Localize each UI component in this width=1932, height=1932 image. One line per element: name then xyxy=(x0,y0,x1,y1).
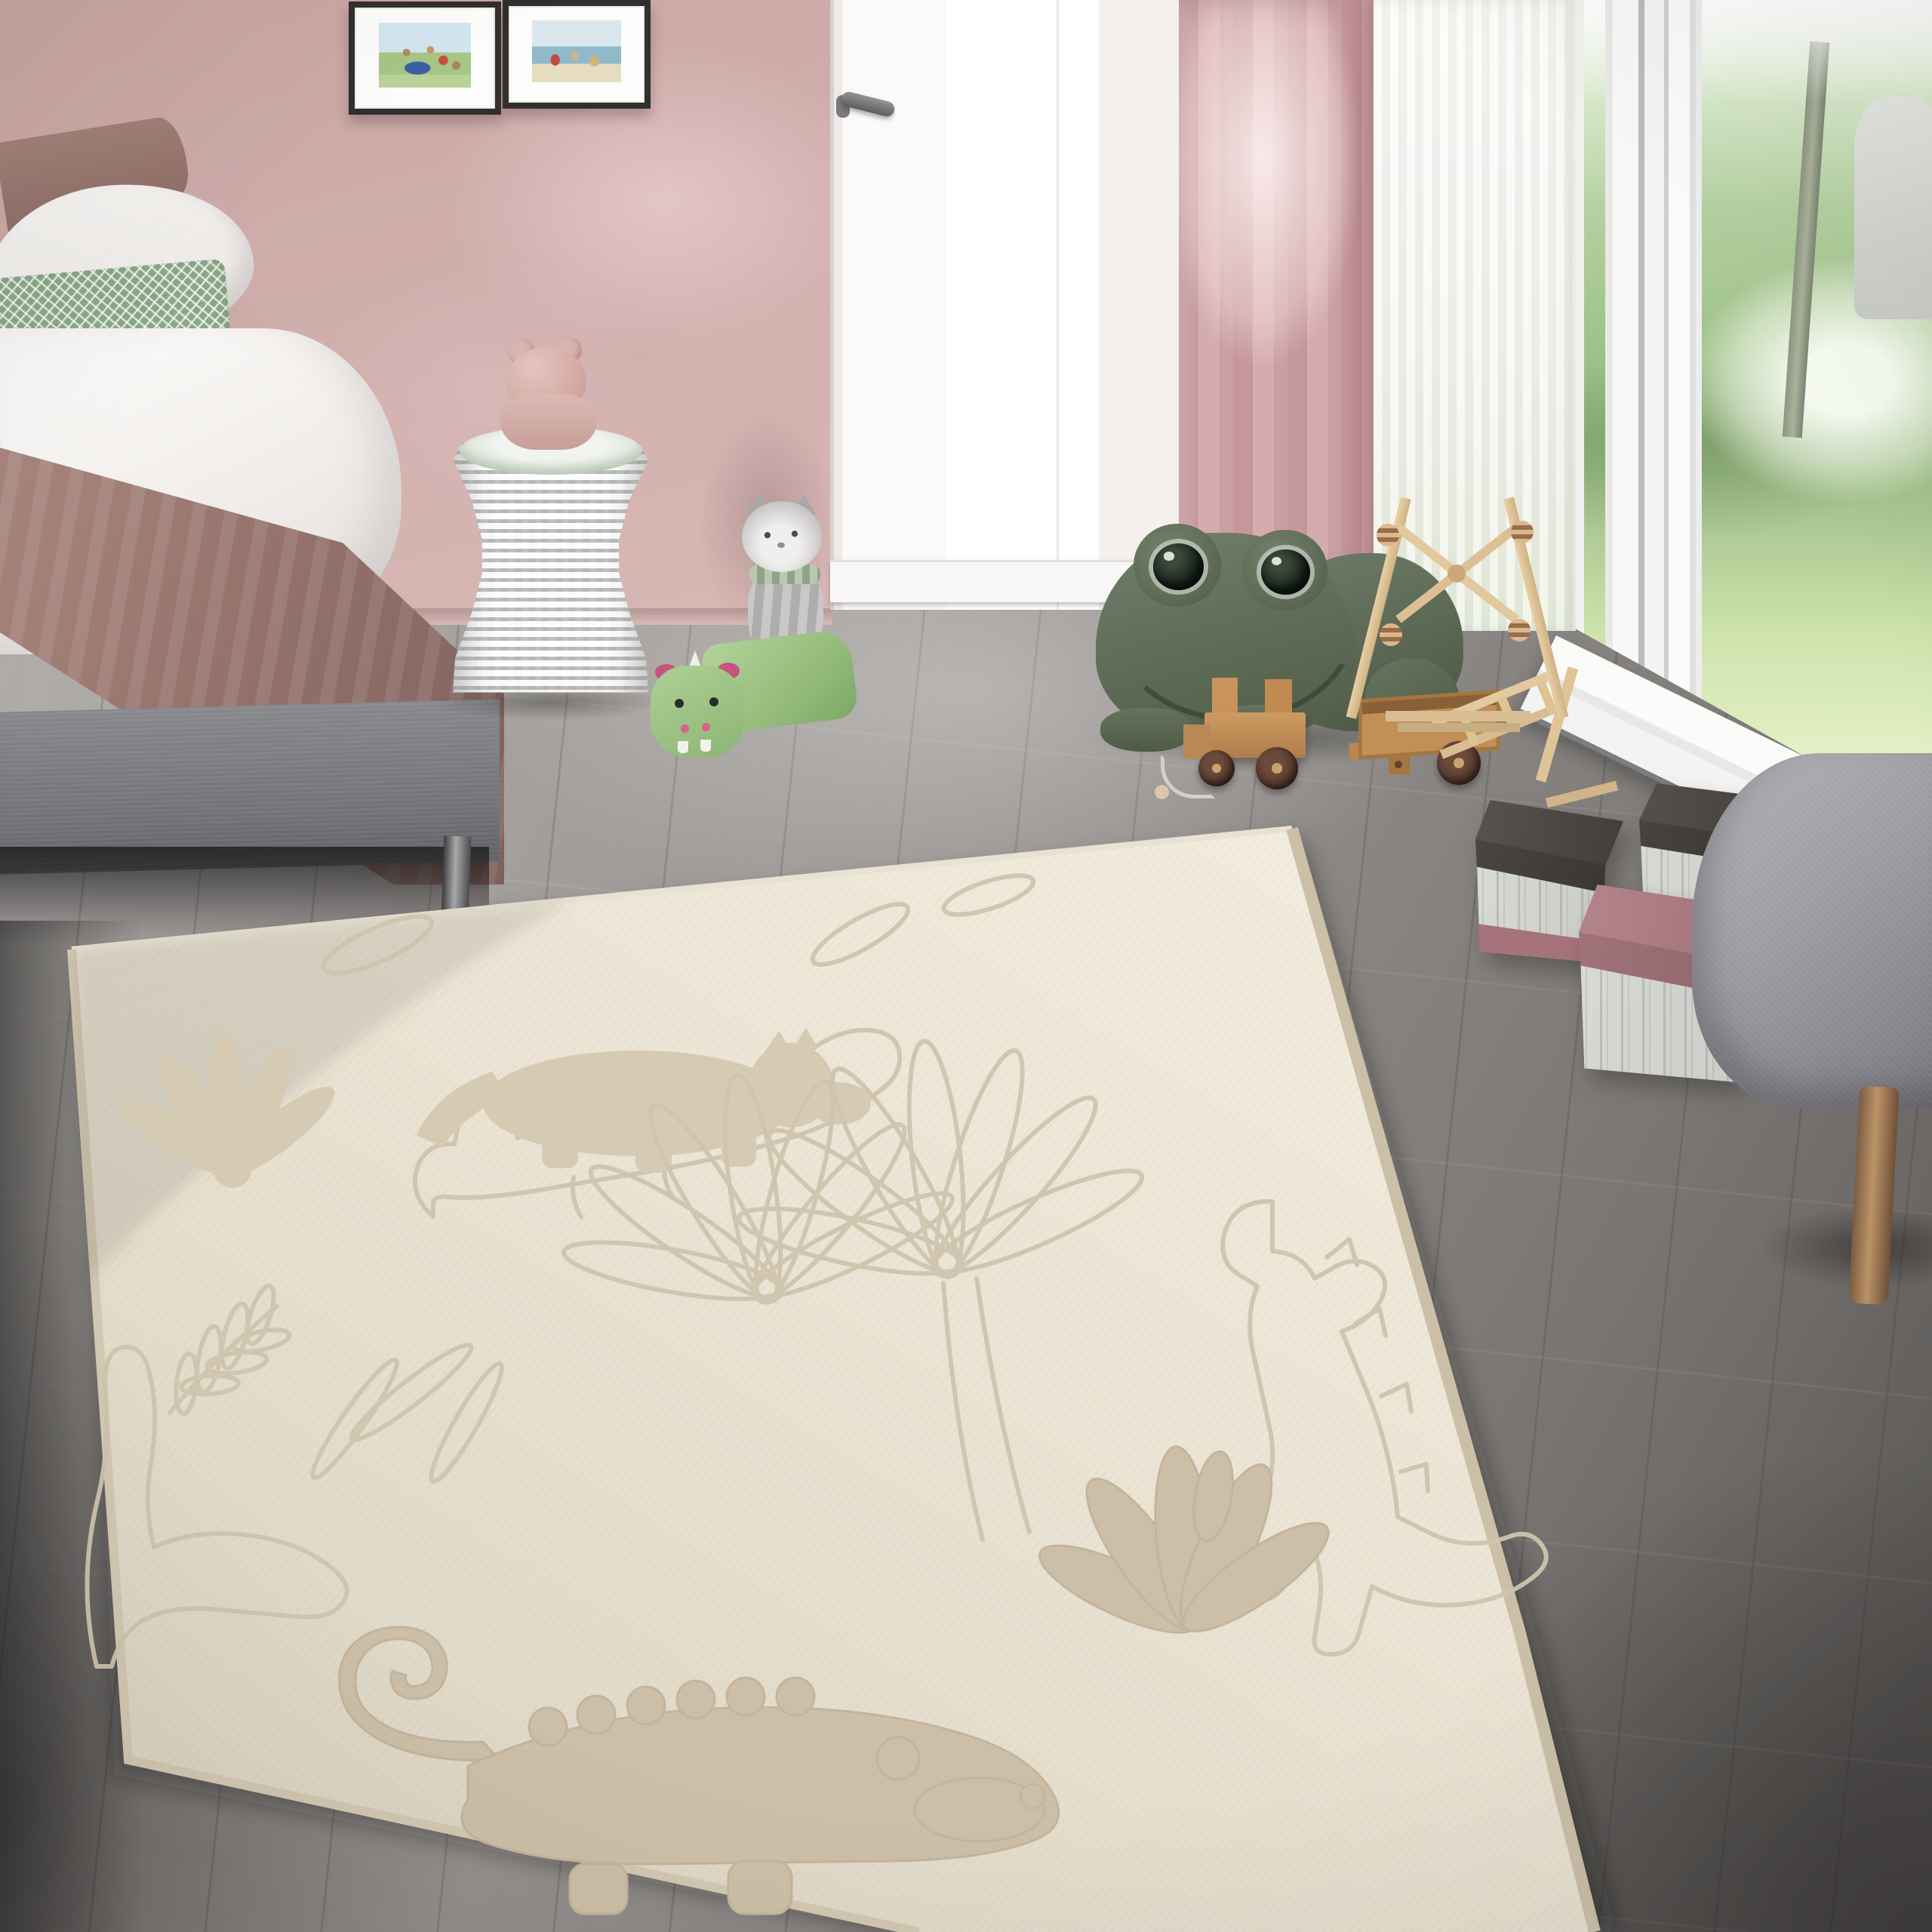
bed-leg xyxy=(441,835,472,943)
picture-art-car-picnic xyxy=(379,23,472,88)
cat-head xyxy=(742,501,822,572)
train-wheel xyxy=(1198,750,1235,786)
ferris-rattle xyxy=(1511,521,1534,543)
chair-shadow xyxy=(1760,1206,1932,1289)
bed xyxy=(0,121,521,974)
frog-eye-glint xyxy=(1272,557,1281,565)
frog-eye-glint xyxy=(1164,552,1174,560)
dragon-pillow xyxy=(651,632,856,761)
frog-foot-left xyxy=(1100,708,1192,752)
ferris-axle xyxy=(1447,565,1466,583)
wagon-hitch xyxy=(1389,755,1410,774)
picture-art-beach xyxy=(532,20,622,82)
frog-eye-right xyxy=(1242,530,1327,611)
picture-frame-car-picnic xyxy=(349,2,501,115)
dragon-tooth-left xyxy=(678,741,688,753)
dragon-eye-right xyxy=(709,697,718,706)
dragon-tooth-right xyxy=(700,740,711,752)
gummy-bear-figure xyxy=(500,338,597,450)
frog-eye-left xyxy=(1134,524,1221,607)
ferris-base xyxy=(1386,711,1531,721)
kids-room-scene xyxy=(0,0,1932,1932)
gray-armchair xyxy=(1692,753,1932,1312)
frog-iris-right xyxy=(1261,549,1311,595)
train-wheel xyxy=(1256,747,1298,789)
wicker-stool xyxy=(447,426,654,712)
dragon-nostril-right xyxy=(702,723,710,731)
bear-body xyxy=(500,394,597,450)
picture-frame-beach xyxy=(503,0,651,109)
frog-iris-left xyxy=(1153,543,1204,590)
wooden-train xyxy=(1183,678,1340,800)
floor-shadow-left xyxy=(0,921,143,1932)
wooden-ferris-wheel xyxy=(1390,491,1524,734)
chair-body xyxy=(1692,753,1932,1108)
dragon-nostril-left xyxy=(681,724,689,733)
dragon-head xyxy=(651,666,744,758)
dragon-eye-left xyxy=(675,699,684,708)
outdoor-chair xyxy=(1854,97,1932,319)
bed-under-shadow xyxy=(0,847,489,946)
ferris-rattle xyxy=(1377,524,1399,546)
ferris-rattle xyxy=(1508,619,1531,641)
door-seam xyxy=(1057,0,1059,610)
ferris-base xyxy=(1398,723,1520,732)
ferris-rattle xyxy=(1380,623,1402,646)
train-string-bead xyxy=(1155,785,1169,799)
